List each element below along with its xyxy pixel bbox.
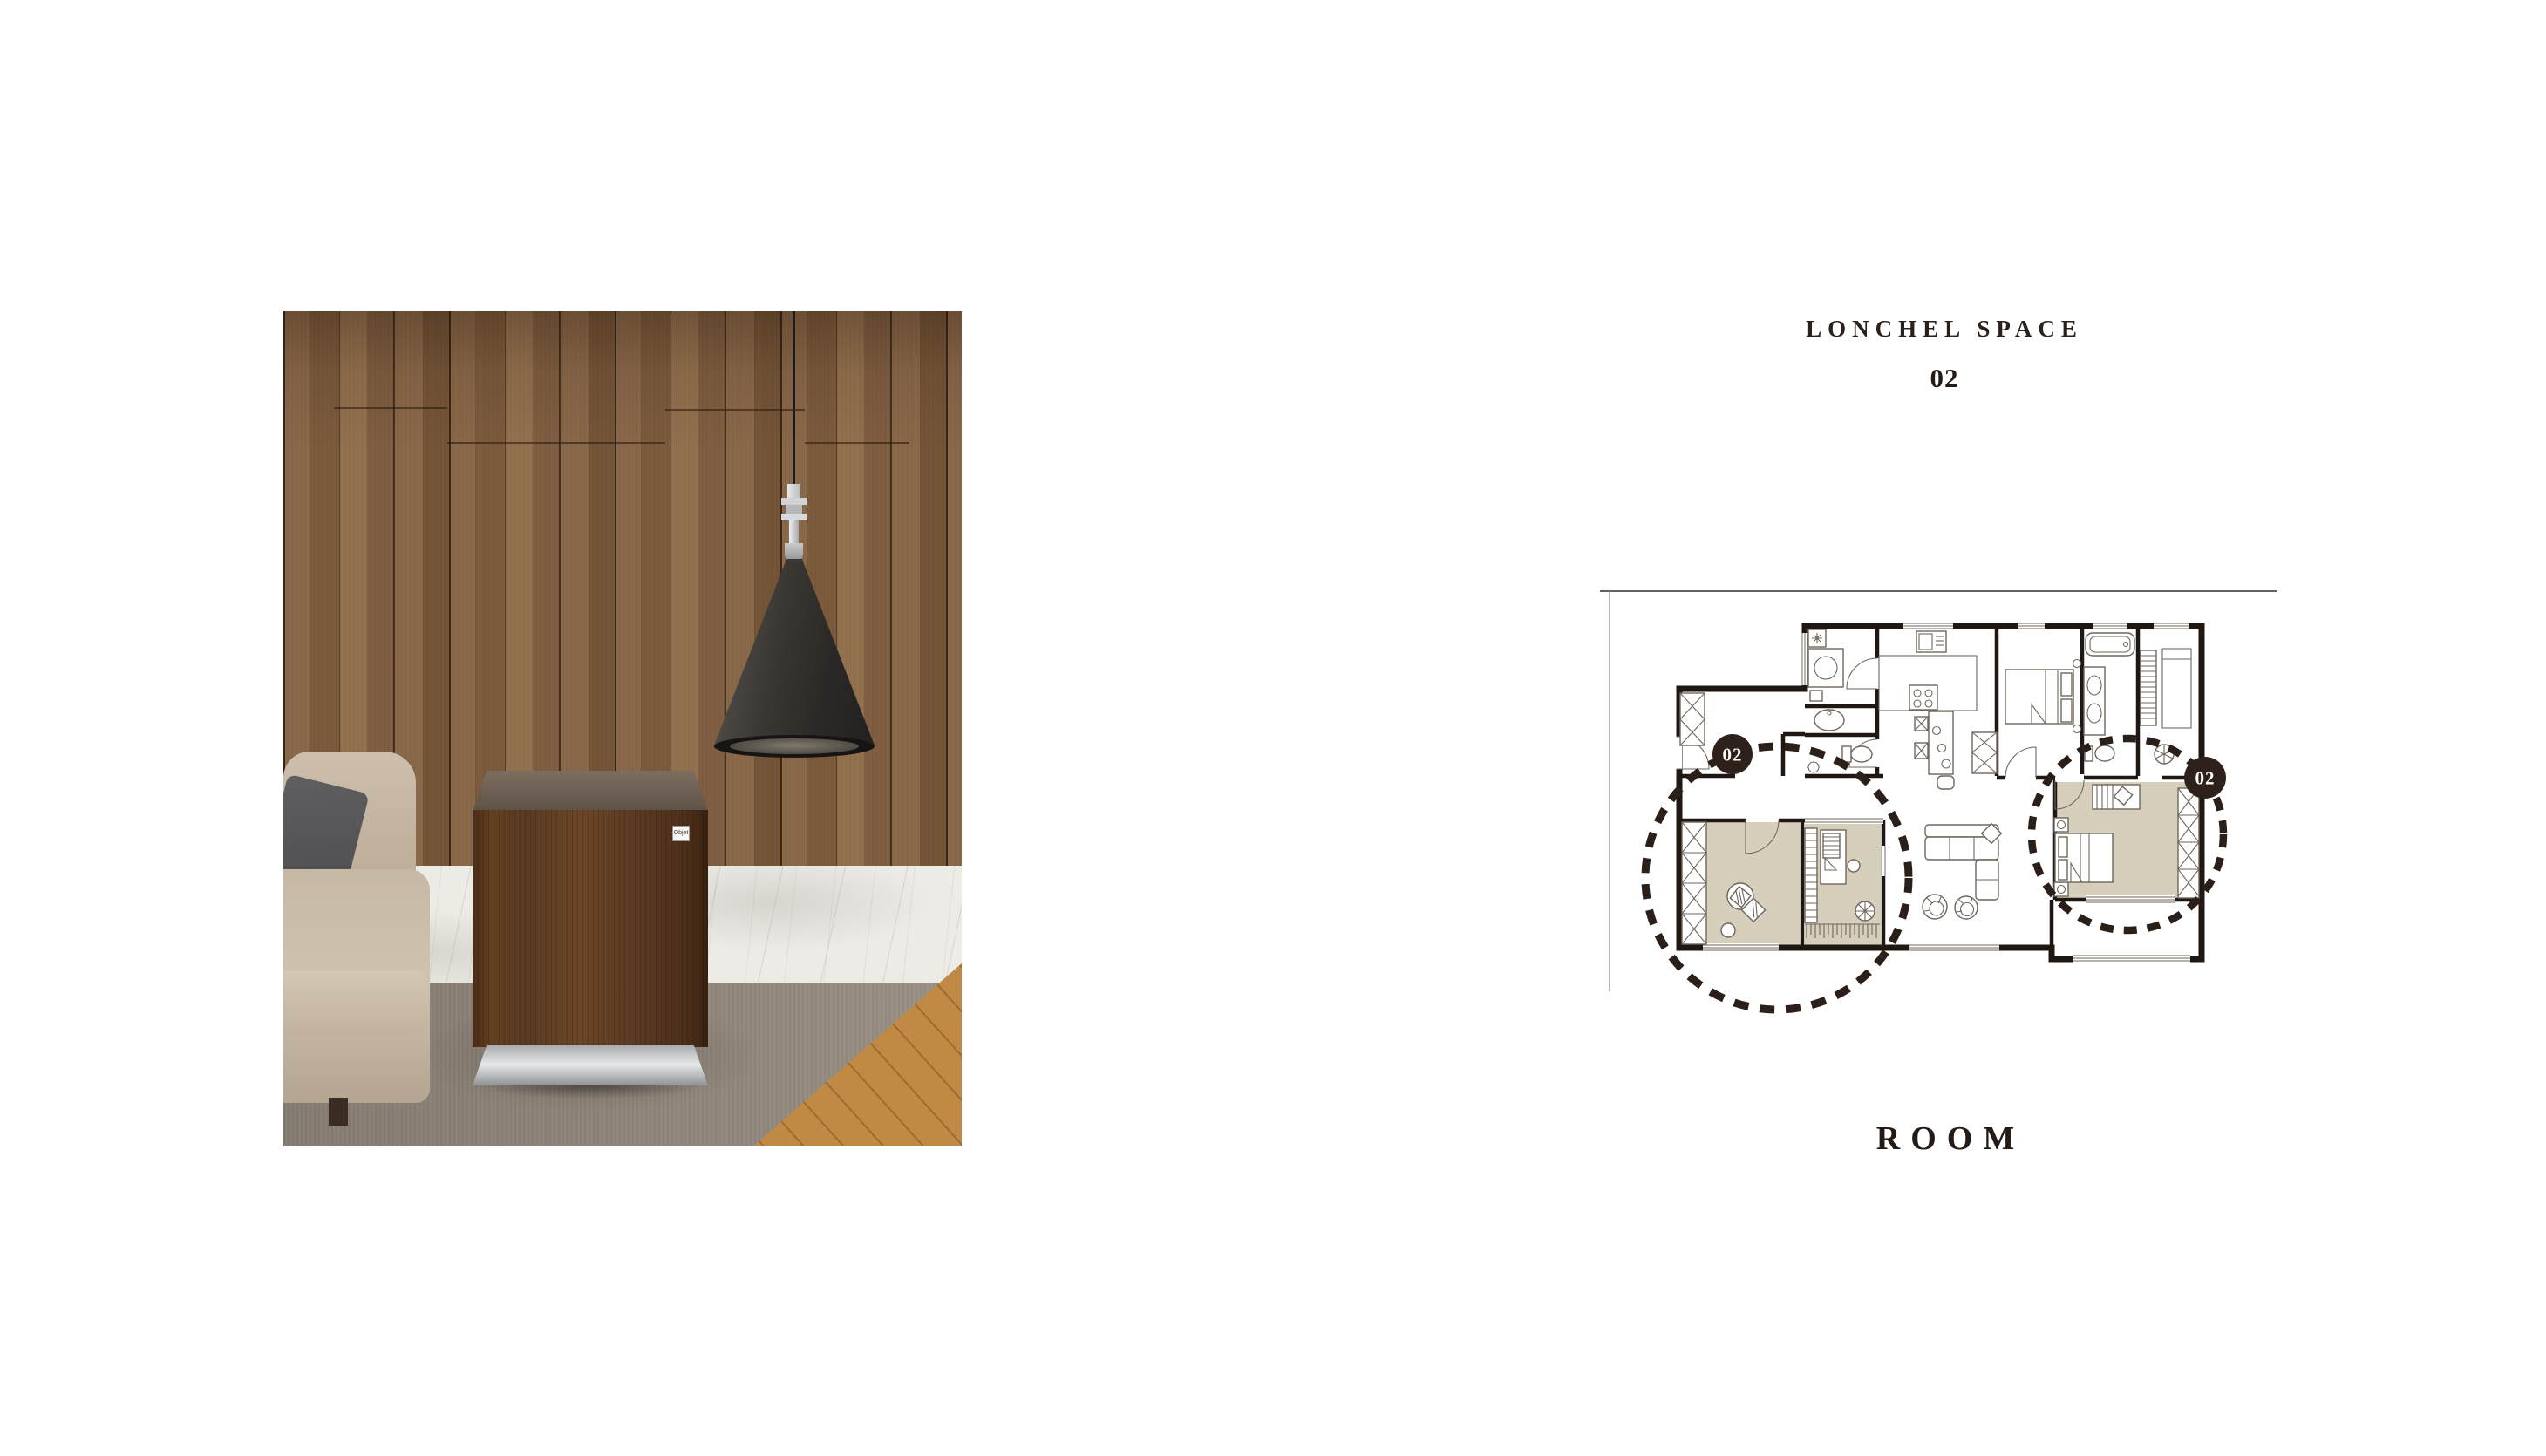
window — [2154, 622, 2189, 630]
pendant-stem — [789, 520, 799, 545]
pendant-cord — [793, 311, 795, 486]
walnut-cabinet — [473, 810, 708, 1047]
hero-photo: Objet — [283, 311, 962, 1146]
plank-seam — [665, 409, 805, 411]
washbasin — [1814, 710, 1844, 731]
bedroom-1 — [2005, 660, 2081, 733]
product-label: Objet — [672, 826, 690, 841]
page-title: LONCHEL SPACE — [1770, 316, 2119, 343]
floor-plan: 02 02 — [1596, 575, 2311, 1099]
entry-cabinet — [1680, 693, 1705, 745]
cabinet-top-face — [473, 771, 708, 812]
plank-seam — [447, 442, 665, 444]
window — [2018, 622, 2045, 630]
badge-02-left: 02 — [1712, 734, 1753, 774]
hall-cabinet — [1972, 732, 1997, 773]
badge-02-right: 02 — [2184, 757, 2226, 799]
plank-seam — [805, 442, 909, 444]
window — [2086, 895, 2175, 904]
page-index: 02 — [1770, 363, 2119, 394]
plank-seam — [334, 407, 447, 409]
cabinet-metal-base — [473, 1045, 708, 1085]
pendant-mount — [781, 498, 807, 505]
balcony-rail — [2073, 954, 2190, 963]
badge-label: 02 — [2195, 768, 2216, 789]
sofa-seat — [283, 970, 430, 1035]
window — [2093, 622, 2127, 630]
pendant-bulb-glow — [730, 738, 859, 754]
badge-label: 02 — [1723, 745, 1743, 765]
page: Objet LONCHEL SPACE 02 ROOM — [0, 0, 2546, 1456]
sofa-leg — [329, 1098, 348, 1126]
pendant-mount — [786, 505, 802, 514]
pendant-mount — [781, 514, 807, 520]
room-caption: ROOM — [1776, 1119, 2125, 1158]
window — [1903, 622, 1953, 630]
window — [1703, 943, 1779, 952]
window — [1909, 943, 1999, 952]
